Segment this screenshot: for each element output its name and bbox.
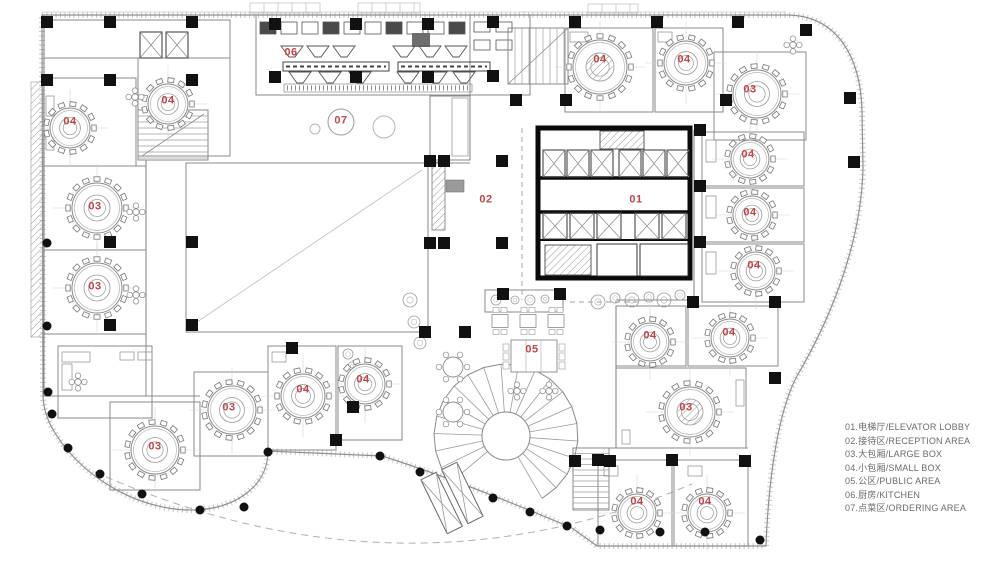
room-label-06: 06: [284, 48, 297, 59]
room-label-04: 04: [747, 261, 760, 272]
room-label-04: 04: [643, 331, 656, 342]
room-label-04: 04: [296, 385, 309, 396]
room-label-04: 04: [677, 55, 690, 66]
room-label-04: 04: [356, 375, 369, 386]
escalator: [421, 462, 483, 533]
room-label-03: 03: [679, 403, 692, 414]
room-label-03: 03: [88, 282, 101, 293]
ordering-area-circles: [310, 109, 395, 138]
legend-item-02: 02.接待区/RECEPTION AREA: [845, 435, 997, 449]
room-label-04: 04: [743, 208, 756, 219]
room-label-03: 03: [88, 202, 101, 213]
legend-item-05: 05.公区/PUBLIC AREA: [845, 475, 997, 489]
room-label-04: 04: [161, 96, 174, 107]
floor-plan-canvas: 0404060702010404030404040303040405030404…: [0, 0, 1000, 563]
legend-item-07: 07.点菜区/ORDERING AREA: [845, 502, 997, 516]
room-label-04: 04: [593, 55, 606, 66]
legend-item-04: 04.小包厢/SMALL BOX: [845, 462, 997, 476]
legend-item-03: 03.大包厢/LARGE BOX: [845, 448, 997, 462]
room-label-04: 04: [630, 497, 643, 508]
room-label-04: 04: [722, 328, 735, 339]
room-label-04: 04: [63, 117, 76, 128]
legend-item-06: 06.厨房/KITCHEN: [845, 489, 997, 503]
room-label-03: 03: [148, 442, 161, 453]
room-label-05: 05: [525, 345, 538, 356]
room-label-01: 01: [629, 195, 642, 206]
banquet-hall: [186, 163, 428, 332]
kitchen-area: [260, 22, 512, 92]
room-label-03: 03: [222, 403, 235, 414]
room-label-02: 02: [479, 195, 492, 206]
legend: 01.电梯厅/ELEVATOR LOBBY02.接待区/RECEPTION AR…: [845, 421, 997, 516]
legend-item-01: 01.电梯厅/ELEVATOR LOBBY: [845, 421, 997, 435]
room-label-03: 03: [743, 85, 756, 96]
room-label-07: 07: [334, 116, 347, 127]
elevator-core: [538, 128, 690, 278]
room-label-04: 04: [741, 150, 754, 161]
room-label-04: 04: [698, 497, 711, 508]
